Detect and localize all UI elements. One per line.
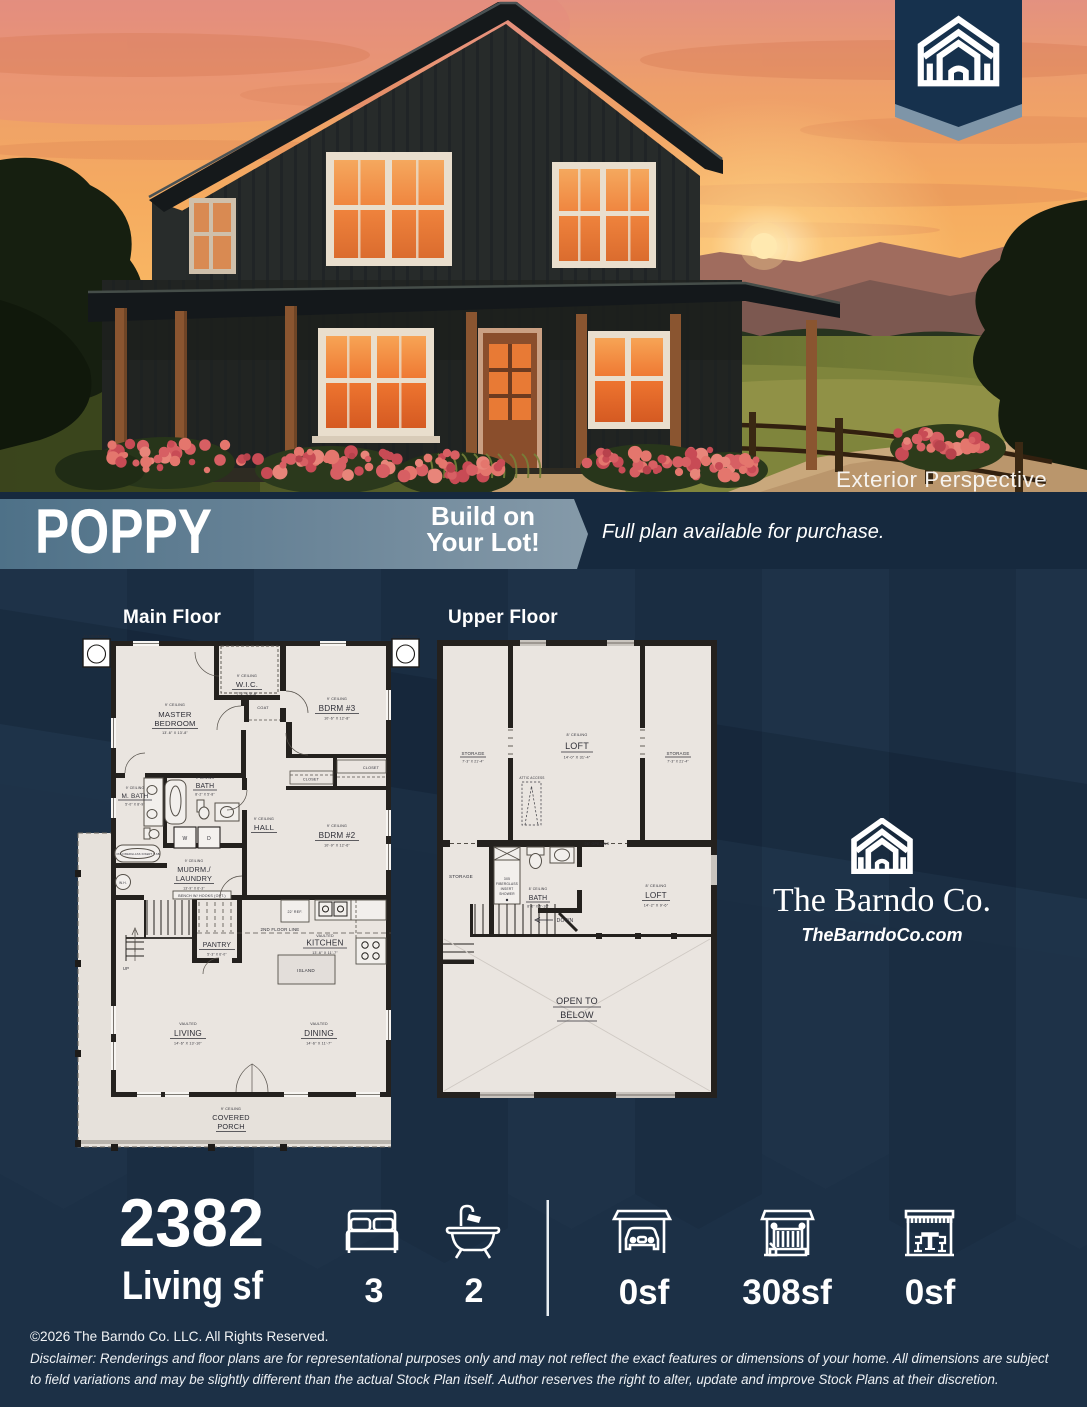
svg-text:LIVING: LIVING xyxy=(174,1029,202,1038)
svg-text:13'-9" X 6'-3": 13'-9" X 6'-3" xyxy=(183,887,205,891)
svg-text:9' CEILING: 9' CEILING xyxy=(126,786,145,790)
svg-text:BELOW: BELOW xyxy=(560,1010,594,1020)
svg-text:MUDRM./: MUDRM./ xyxy=(177,865,211,874)
svg-text:FIBERGLASS: FIBERGLASS xyxy=(496,882,518,886)
svg-text:7'-3" X 21'-4": 7'-3" X 21'-4" xyxy=(667,760,689,764)
svg-text:7'-3" X 21'-4": 7'-3" X 21'-4" xyxy=(462,760,484,764)
svg-text:LOFT: LOFT xyxy=(565,741,589,751)
svg-text:W: W xyxy=(183,836,188,842)
svg-text:2: 2 xyxy=(465,1272,484,1310)
svg-text:AC CONDENSER: AC CONDENSER xyxy=(84,634,109,638)
svg-text:14'-0" X 31'-4": 14'-0" X 31'-4" xyxy=(564,756,591,760)
svg-text:CLOSET: CLOSET xyxy=(303,778,320,782)
svg-text:BEDROOM: BEDROOM xyxy=(154,719,195,728)
svg-text:3: 3 xyxy=(365,1272,384,1310)
svg-text:2382: 2382 xyxy=(119,1185,264,1261)
svg-text:308sf: 308sf xyxy=(742,1273,832,1312)
svg-text:10'-6" X 12'-8": 10'-6" X 12'-8" xyxy=(324,717,350,721)
svg-text:W.I.C.: W.I.C. xyxy=(236,680,258,689)
svg-text:BATH: BATH xyxy=(196,783,215,790)
svg-text:Living sf: Living sf xyxy=(122,1264,264,1308)
svg-text:3X5: 3X5 xyxy=(504,877,510,881)
svg-text:CLOSET: CLOSET xyxy=(363,766,380,770)
svg-text:7'-2" X 5'-6": 7'-2" X 5'-6" xyxy=(236,692,258,696)
svg-text:9' CEILING: 9' CEILING xyxy=(165,703,185,707)
svg-text:BENCH W/ HOOKS (OPT.): BENCH W/ HOOKS (OPT.) xyxy=(178,894,226,898)
svg-text:PORCH: PORCH xyxy=(217,1122,244,1131)
svg-text:LOFT: LOFT xyxy=(645,891,667,900)
svg-text:HALL: HALL xyxy=(254,823,275,832)
svg-text:SHOWER: SHOWER xyxy=(499,892,515,896)
svg-text:22' REF.: 22' REF. xyxy=(287,910,302,914)
svg-text:36S FIBERGLASS INSERT T-SB: 36S FIBERGLASS INSERT T-SB xyxy=(116,852,159,856)
svg-text:24" OPENING: 24" OPENING xyxy=(584,842,609,846)
svg-text:STORAGE: STORAGE xyxy=(666,751,689,756)
svg-text:UP: UP xyxy=(123,966,129,971)
svg-text:8'-2" X 5'-8": 8'-2" X 5'-8" xyxy=(195,793,215,797)
svg-text:5'-3" X 6'-0": 5'-3" X 6'-0" xyxy=(207,953,227,957)
svg-text:PANTRY: PANTRY xyxy=(203,942,232,949)
svg-text:0sf: 0sf xyxy=(619,1273,670,1312)
svg-text:Full plan available for purcha: Full plan available for purchase. xyxy=(602,521,884,543)
svg-text:COVERED: COVERED xyxy=(212,1113,250,1122)
svg-text:8' CEILING: 8' CEILING xyxy=(646,884,667,888)
svg-text:MASTER: MASTER xyxy=(158,710,192,719)
svg-text:8' CEILING: 8' CEILING xyxy=(529,887,548,891)
svg-text:9' CEILING: 9' CEILING xyxy=(254,817,274,821)
svg-text:9' CEILING: 9' CEILING xyxy=(221,1107,241,1111)
svg-text:W.H.: W.H. xyxy=(119,881,127,885)
svg-text:M. BATH: M. BATH xyxy=(121,793,148,800)
svg-text:VAULTED: VAULTED xyxy=(179,1022,197,1026)
svg-text:5'-0" X 8'-9": 5'-0" X 8'-9" xyxy=(125,803,145,807)
svg-text:10'-9" X 12'-6": 10'-9" X 12'-6" xyxy=(324,844,350,848)
svg-text:KITCHEN: KITCHEN xyxy=(306,939,343,948)
svg-text:8'-0" X 5'-10": 8'-0" X 5'-10" xyxy=(527,905,549,909)
svg-text:2ND FLOOR LINE: 2ND FLOOR LINE xyxy=(261,927,300,932)
svg-text:POPPY: POPPY xyxy=(35,497,212,567)
svg-text:ATTIC ACCESS: ATTIC ACCESS xyxy=(519,776,544,780)
svg-text:STORAGE: STORAGE xyxy=(461,751,484,756)
svg-text:STORAGE: STORAGE xyxy=(449,874,473,879)
svg-text:9' CEILING: 9' CEILING xyxy=(237,674,257,678)
svg-text:0sf: 0sf xyxy=(905,1273,956,1312)
svg-text:BATH: BATH xyxy=(529,895,548,902)
svg-text:14'-6" X 11'-7": 14'-6" X 11'-7" xyxy=(306,1042,332,1046)
svg-text:9' CEILING: 9' CEILING xyxy=(196,776,215,780)
svg-text:AC CONDENSER: AC CONDENSER xyxy=(393,634,418,638)
svg-text:VAULTED: VAULTED xyxy=(310,1022,328,1026)
svg-text:ISLAND: ISLAND xyxy=(297,968,315,973)
svg-text:DINING: DINING xyxy=(304,1029,334,1038)
svg-text:D: D xyxy=(207,836,211,842)
svg-text:COAT: COAT xyxy=(257,705,269,710)
svg-text:9' CEILING: 9' CEILING xyxy=(185,859,204,863)
svg-text:14'-2" X 9'-6": 14'-2" X 9'-6" xyxy=(644,904,669,908)
svg-text:BDRM #3: BDRM #3 xyxy=(319,704,356,713)
svg-text:Exterior Perspective: Exterior Perspective xyxy=(836,467,1047,492)
svg-text:↓: ↓ xyxy=(531,786,533,791)
svg-text:14'-6" X 13'-10": 14'-6" X 13'-10" xyxy=(174,1042,203,1046)
svg-text:OPEN TO: OPEN TO xyxy=(556,996,598,1006)
svg-text:DOWN: DOWN xyxy=(557,918,574,924)
svg-text:9' CEILING: 9' CEILING xyxy=(327,824,347,828)
svg-text:13'-6" X 13'-8": 13'-6" X 13'-8" xyxy=(162,731,188,735)
svg-text:9' CEILING: 9' CEILING xyxy=(327,697,347,701)
svg-text:LAUNDRY: LAUNDRY xyxy=(176,874,212,883)
svg-text:BDRM #2: BDRM #2 xyxy=(319,831,356,840)
svg-text:8' CEILING: 8' CEILING xyxy=(567,733,588,737)
svg-text:13'-6" X 11'-7": 13'-6" X 11'-7" xyxy=(312,951,338,955)
svg-text:Your Lot!: Your Lot! xyxy=(426,527,540,557)
svg-text:INSERT: INSERT xyxy=(501,887,514,891)
svg-text:VAULTED: VAULTED xyxy=(316,934,334,938)
